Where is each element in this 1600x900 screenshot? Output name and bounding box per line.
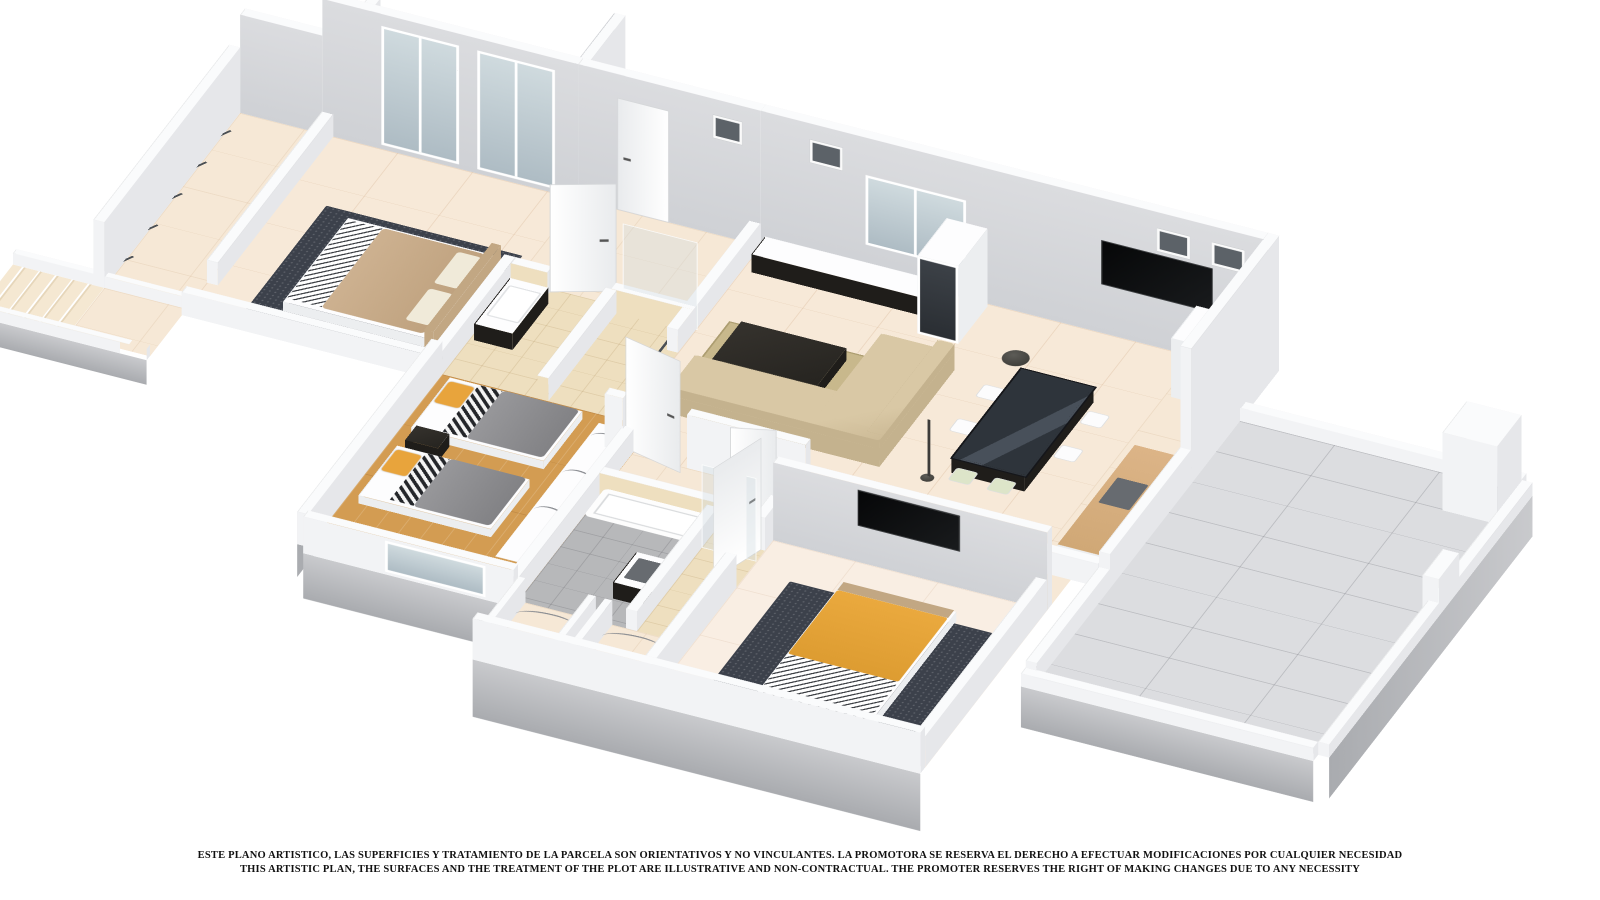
clerestory-window (1157, 228, 1190, 259)
block-terrace-corner-face-s (1442, 432, 1497, 524)
floor-plan-page: ESTE PLANO ARTISTICO, LAS SUPERFICIES Y … (0, 0, 1600, 900)
window-mullion (419, 38, 422, 153)
floor-lamp-pole (928, 419, 931, 477)
clerestory-window (810, 139, 843, 170)
wall-shower2-divider-face-s (626, 609, 637, 631)
disclaimer-line-es: ESTE PLANO ARTISTICO, LAS SUPERFICIES Y … (0, 849, 1600, 863)
door-handle (624, 157, 631, 161)
disclaimer-line-en: THIS ARTISTIC PLAN, THE SURFACES AND THE… (0, 863, 1600, 877)
bookshelf-face-s (917, 256, 958, 344)
wall-living-west-face-s (667, 327, 678, 353)
french-window (382, 26, 460, 165)
clerestory-window (713, 114, 742, 144)
window-mullion (515, 62, 518, 177)
wall-shower1-divider-face-s (537, 376, 548, 402)
door-bathroom1 (550, 184, 617, 293)
wall-stair-rail-south-face-e (147, 345, 150, 361)
french-window (477, 50, 555, 189)
window-mullion (915, 190, 918, 255)
wall-bedroom1-west-face-s (207, 260, 218, 286)
door-handle (600, 239, 609, 242)
wall-master-north-face-e (1047, 526, 1052, 610)
disclaimer: ESTE PLANO ARTISTICO, LAS SUPERFICIES Y … (0, 849, 1600, 876)
patio-door (617, 97, 669, 223)
door-handle (667, 413, 674, 419)
